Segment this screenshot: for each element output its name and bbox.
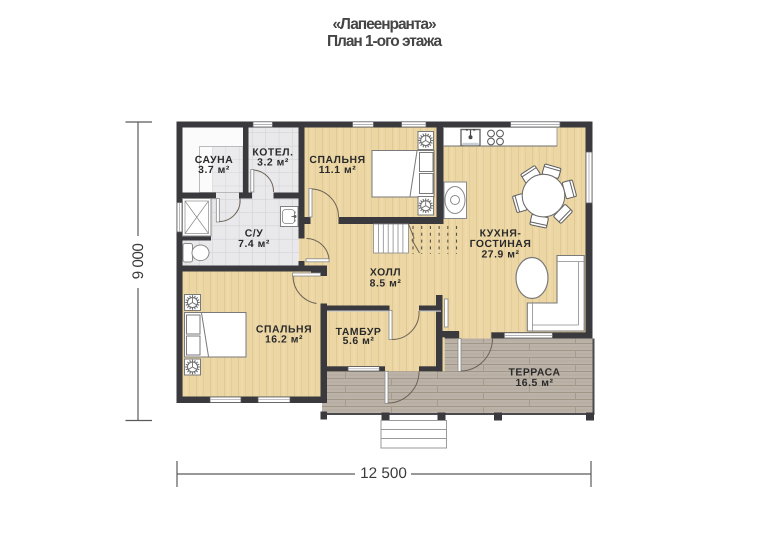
svg-text:ХОЛЛ: ХОЛЛ [370, 267, 401, 278]
svg-text:7.4 м²: 7.4 м² [238, 239, 270, 250]
svg-text:ТЕРРАСА: ТЕРРАСА [508, 367, 560, 378]
svg-text:3.2 м²: 3.2 м² [257, 157, 289, 168]
svg-text:11.1 м²: 11.1 м² [319, 165, 357, 176]
svg-text:9 000: 9 000 [130, 244, 147, 280]
svg-text:12 500: 12 500 [360, 465, 407, 482]
svg-text:27.9 м²: 27.9 м² [481, 250, 519, 261]
svg-text:3.7 м²: 3.7 м² [198, 165, 230, 176]
svg-text:ГОСТИНАЯ: ГОСТИНАЯ [470, 239, 532, 250]
svg-text:16.2 м²: 16.2 м² [265, 335, 303, 346]
svg-text:5.6 м²: 5.6 м² [343, 336, 375, 347]
svg-text:16.5 м²: 16.5 м² [515, 378, 553, 389]
svg-text:КУХНЯ-: КУХНЯ- [480, 229, 522, 240]
svg-text:8.5 м²: 8.5 м² [370, 278, 402, 289]
